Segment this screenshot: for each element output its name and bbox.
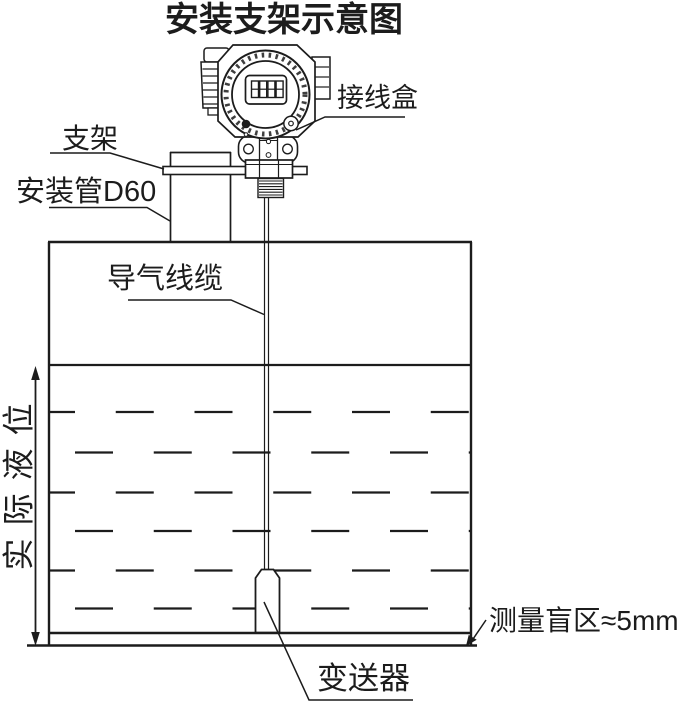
leader-air-cable (128, 300, 264, 315)
lcd-display (246, 76, 287, 105)
label-blind-zone: 测量盲区≈5mm (489, 605, 679, 637)
process-connection (239, 136, 298, 164)
hex-nut (246, 160, 293, 178)
mounting-pipe (170, 152, 231, 242)
leader-bracket (50, 153, 164, 169)
label-actual-level: 实际液位 (1, 384, 38, 576)
label-junction-box: 接线盒 (337, 83, 418, 114)
threaded-stub (258, 179, 284, 198)
installation-bracket-diagram: 安装支架示意图 接线盒 支架 安装管D60 导气线缆 实际液位 测量盲区≈5mm… (0, 0, 700, 708)
submersible-probe (256, 570, 280, 633)
page-title: 安装支架示意图 (148, 1, 420, 40)
leader-mounting-pipe (49, 208, 170, 222)
label-mounting-pipe: 安装管D60 (16, 176, 156, 209)
air-guide-cable-line (265, 198, 269, 573)
label-bracket: 支架 (62, 123, 118, 155)
tank-outline (27, 242, 477, 646)
label-air-cable: 导气线缆 (107, 263, 223, 296)
label-transmitter: 变送器 (317, 661, 410, 697)
